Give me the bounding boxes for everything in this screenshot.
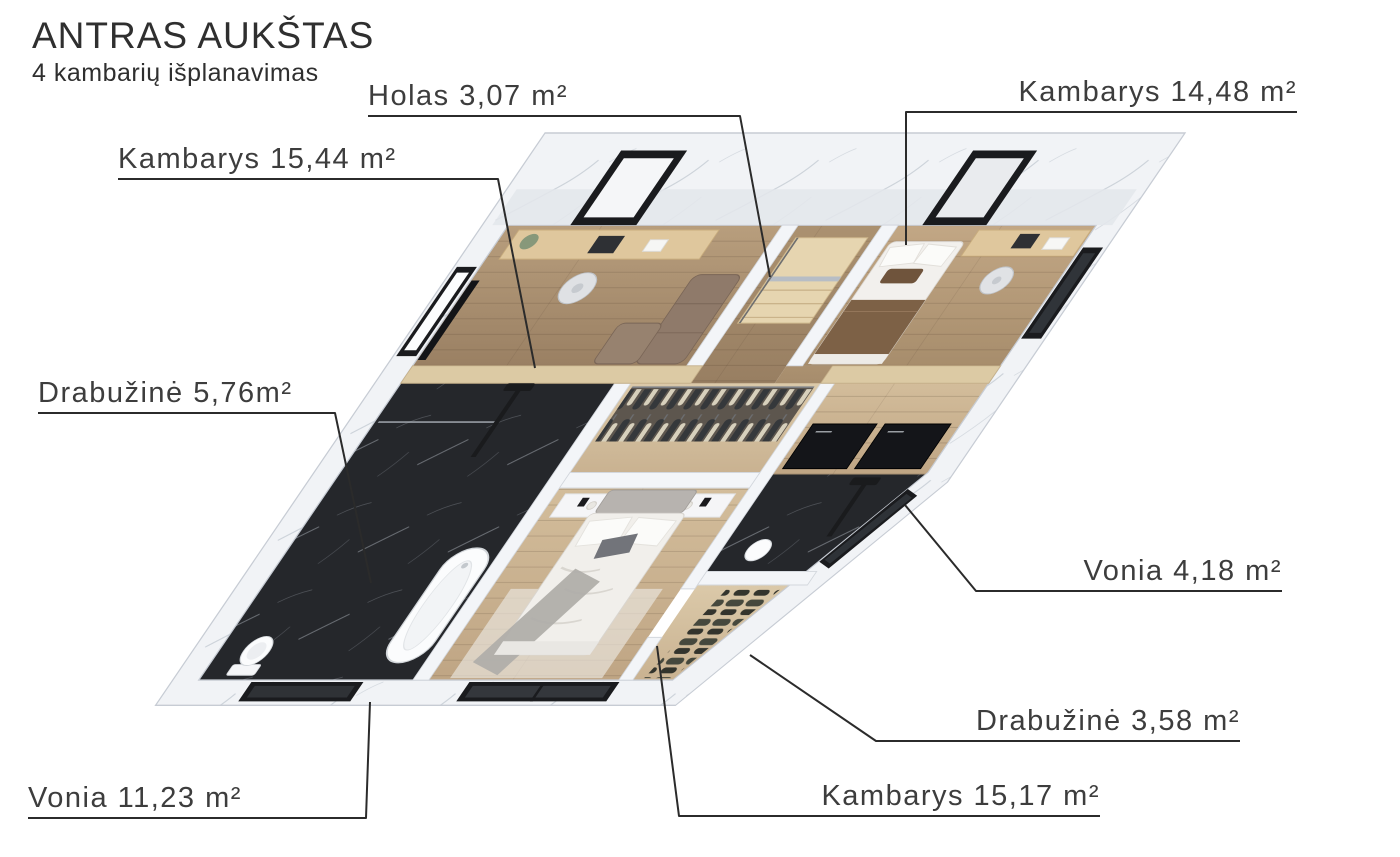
building-plan	[156, 133, 1185, 705]
room-label-drabuzine-5-76: Drabužinė 5,76m²	[38, 375, 335, 411]
room-label-kambarys-14-48: Kambarys 14,48 m²	[905, 74, 1297, 110]
page-header: ANTRAS AUKŠTAS 4 kambarių išplanavimas	[32, 16, 374, 88]
wood-top-wall-left	[401, 366, 703, 383]
room-label-holas: Holas 3,07 m²	[368, 78, 740, 114]
page-title: ANTRAS AUKŠTAS	[32, 16, 374, 57]
wood-top-wall-right	[821, 366, 1001, 383]
room-label-vonia-4-18: Vonia 4,18 m²	[975, 553, 1282, 589]
desk-room-14-48	[961, 230, 1091, 256]
room-label-drabuzine-3-58: Drabužinė 3,58 m²	[875, 703, 1240, 739]
room-label-kambarys-15-17: Kambarys 15,17 m²	[678, 778, 1100, 814]
room-label-vonia-11-23: Vonia 11,23 m²	[28, 780, 366, 816]
page-subtitle: 4 kambarių išplanavimas	[32, 59, 374, 88]
room-label-kambarys-15-44: Kambarys 15,44 m²	[118, 141, 498, 177]
wardrobe-clothes-rail	[595, 387, 814, 441]
desk-room-15-44	[499, 230, 719, 259]
floor-plan-page: ANTRAS AUKŠTAS 4 kambarių išplanavimas H…	[0, 0, 1400, 857]
window-bedroom-south	[456, 682, 619, 701]
window-bathroom-south	[238, 682, 363, 701]
